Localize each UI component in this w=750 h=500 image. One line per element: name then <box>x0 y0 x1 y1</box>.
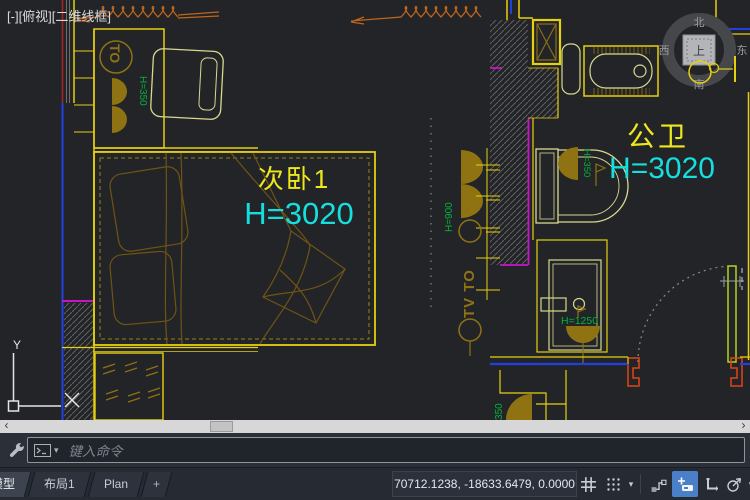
view-cube-south[interactable]: 南 <box>694 78 705 91</box>
room-label: 次卧1 <box>258 164 330 194</box>
recent-commands-caret-icon[interactable]: ▾ <box>54 445 59 456</box>
view-cube-north[interactable]: 北 <box>694 16 705 29</box>
command-placeholder: 键入命令 <box>69 440 123 460</box>
view-cube-west[interactable]: 西 <box>659 45 670 57</box>
infer-constraints-icon[interactable] <box>646 471 670 497</box>
grid-display-icon[interactable] <box>576 471 601 497</box>
tv-outlet-label: TV TO <box>461 269 478 318</box>
dynamic-input-icon[interactable] <box>672 471 698 497</box>
viewport-menu-control[interactable]: [-] <box>7 9 19 24</box>
viewport-controls: [-][俯视][二维线框] <box>7 6 111 25</box>
visual-style-control[interactable]: [二维线框] <box>52 9 111 24</box>
tab-layout1[interactable]: 布局1 <box>28 472 91 497</box>
command-input[interactable]: ▾ 键入命令 <box>27 437 745 463</box>
scroll-right-button[interactable]: › <box>737 420 750 433</box>
autocad-window: TO H=350 次卧1 H=3020 <box>0 0 750 500</box>
height-annotation: H=350 <box>494 403 505 420</box>
customize-wrench-icon[interactable] <box>7 441 24 458</box>
height-annotation: H=1250 <box>561 315 598 327</box>
view-cube-east[interactable]: 东 <box>737 44 748 57</box>
horizontal-scrollbar[interactable]: ‹ › <box>0 420 750 433</box>
room-height-label: H=3020 <box>244 196 353 231</box>
height-annotation: H=900 <box>444 202 455 232</box>
scrollbar-thumb[interactable] <box>210 421 233 432</box>
tab-plan[interactable]: Plan <box>87 472 144 497</box>
view-control[interactable]: [俯视] <box>19 9 52 24</box>
polar-tracking-icon[interactable] <box>724 471 744 497</box>
polar-tracking-caret-icon[interactable]: ▾ <box>745 471 750 497</box>
drawing-canvas[interactable]: TO H=350 次卧1 H=3020 <box>0 0 750 420</box>
coordinates-display[interactable]: 70712.1238, -18633.6479, 0.0000 <box>392 471 577 497</box>
outlet-label: TO <box>107 44 123 63</box>
snap-mode-icon[interactable] <box>603 471 623 497</box>
ucs-y-label: Y <box>13 338 21 352</box>
status-bar: 模型 布局1 Plan + 70712.1238, -18633.6479, 0… <box>0 467 750 500</box>
command-bar: ▾ 键入命令 <box>0 433 750 467</box>
scroll-left-button[interactable]: ‹ <box>0 420 13 433</box>
command-prompt-icon[interactable] <box>34 444 51 457</box>
layout-tabs: 模型 布局1 Plan + <box>0 472 172 497</box>
snap-mode-caret-icon[interactable]: ▾ <box>625 471 637 497</box>
status-separator <box>640 474 641 494</box>
tab-model[interactable]: 模型 <box>0 472 31 497</box>
room-height-label: H=3020 <box>609 152 715 185</box>
height-annotation: H=350 <box>137 76 148 106</box>
height-annotation: H=350 <box>581 149 592 177</box>
new-layout-button[interactable]: + <box>140 472 172 497</box>
view-cube-top-label[interactable]: 上 <box>693 44 705 58</box>
ortho-mode-icon[interactable] <box>701 471 723 497</box>
room-label: 公卫 <box>627 121 689 152</box>
